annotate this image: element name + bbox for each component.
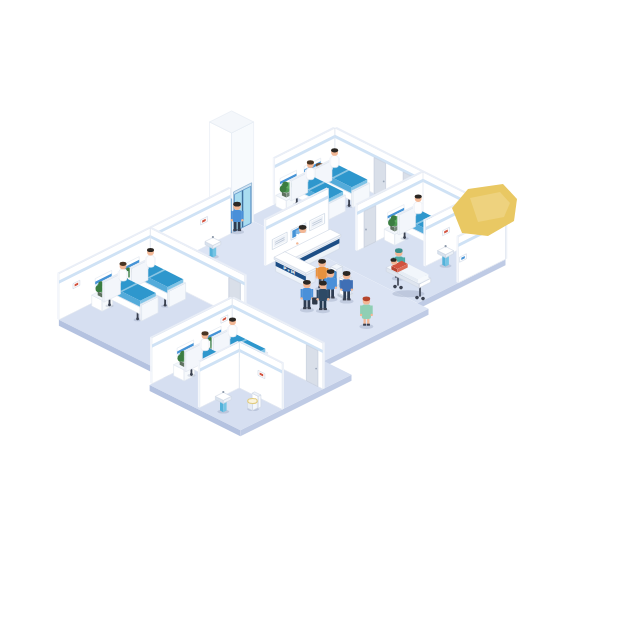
hospital-ward-illustration: Isometric hospital ward floor illustrati… [0,0,640,640]
canvas-background: Isometric hospital ward floor illustrati… [0,0,640,640]
hospital-ward-scene: P+M [0,0,640,640]
room-d-door [306,345,318,387]
room-b-door [364,206,376,248]
